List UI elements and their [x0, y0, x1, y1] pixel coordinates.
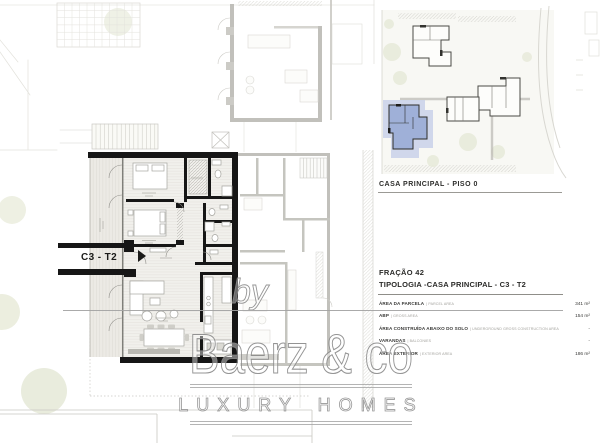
floor-plan-canvas: C3 - T2 — [0, 0, 600, 443]
area-label-en: | BALCONIES — [408, 339, 432, 343]
area-value: - — [588, 339, 590, 344]
area-label: VARANDAS — [379, 338, 406, 343]
fraction-title: FRAÇÃO 42 — [379, 268, 424, 277]
console — [150, 248, 166, 252]
stairs — [60, 124, 158, 149]
table-row: ÁREA DA PARCELA | PARCEL AREA 341 m² — [379, 301, 590, 313]
typology-title: TIPOLOGIA -CASA PRINCIPAL - C3 - T2 — [379, 280, 526, 289]
floor-plan-sheet: C3 - T2 — [0, 0, 600, 443]
table-row: ÁREA CONSTRUÍDA ABAIXO DO SOLO | UNDERGR… — [379, 326, 590, 338]
caption-rule — [378, 192, 562, 193]
boundary-hatch-band — [363, 150, 373, 408]
background-context — [0, 3, 374, 150]
header-rule — [378, 294, 563, 295]
area-label: ABP — [379, 313, 389, 318]
area-label-en: | PARCEL AREA — [426, 302, 454, 306]
table-row: ABP | GROSS AREA 154 m² — [379, 313, 590, 325]
shaft-x-box — [212, 132, 229, 148]
area-label-en: | GROSS AREA — [391, 314, 418, 318]
site-plan — [382, 6, 599, 178]
area-label-en: | UNDERGROUND GROSS CONSTRUCTION AREA — [470, 327, 559, 331]
bed-bedroom1 — [128, 210, 166, 236]
area-label: ÁREA CONSTRUÍDA ABAIXO DO SOLO — [379, 326, 468, 331]
site-plan-caption: CASA PRINCIPAL - PISO 0 — [379, 181, 478, 188]
wardrobe — [177, 208, 183, 240]
neighbour-unit-right — [233, 150, 373, 408]
area-value: - — [588, 327, 590, 332]
closet — [189, 160, 207, 194]
area-value: 186 m² — [575, 352, 590, 357]
unit-label: C3 - T2 — [81, 252, 117, 263]
area-label: ÁREA DA PARCELA — [379, 301, 424, 306]
neighbour-unit-top — [212, 0, 374, 152]
table-row: VARANDAS | BALCONIES - — [379, 338, 590, 350]
area-label-en: | EXTERIOR AREA — [420, 352, 452, 356]
area-label: ÁREA EXTERIOR — [379, 351, 418, 356]
tree-icon — [21, 368, 67, 414]
bed-suite — [133, 163, 167, 189]
table-row: ÁREA EXTERIOR | EXTERIOR AREA 186 m² — [379, 351, 590, 363]
highlighted-unit: C3 - T2 — [58, 152, 238, 363]
pergola-grid — [57, 3, 140, 47]
tv-bench — [128, 349, 180, 354]
area-value: 341 m² — [575, 302, 590, 307]
area-table: ÁREA DA PARCELA | PARCEL AREA 341 m² ABP… — [379, 301, 590, 363]
stairs — [300, 158, 327, 178]
tree-icon — [0, 196, 26, 224]
tree-icon — [0, 294, 20, 330]
area-value: 154 m² — [575, 314, 590, 319]
